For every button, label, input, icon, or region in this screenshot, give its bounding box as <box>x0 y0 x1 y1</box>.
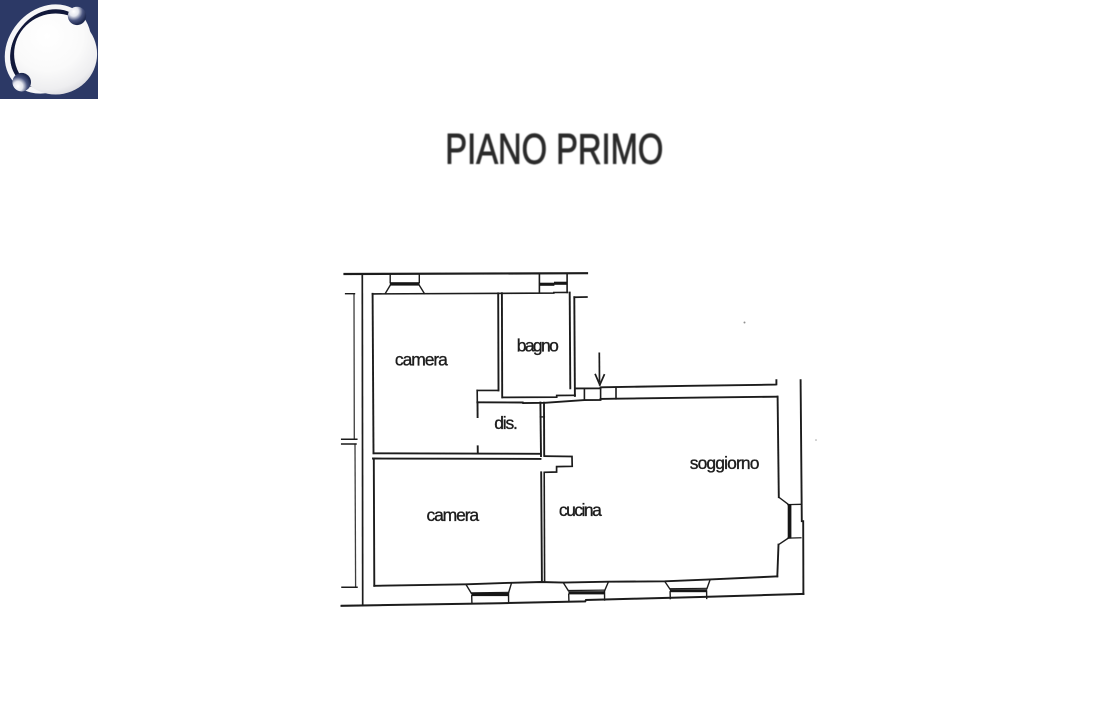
svg-text:soggiorno: soggiorno <box>690 453 760 473</box>
svg-text:camera: camera <box>395 349 448 369</box>
svg-text:dis.: dis. <box>494 413 518 433</box>
svg-text:bagno: bagno <box>517 335 559 355</box>
svg-text:cucina: cucina <box>559 500 602 520</box>
svg-text:camera: camera <box>427 505 480 525</box>
